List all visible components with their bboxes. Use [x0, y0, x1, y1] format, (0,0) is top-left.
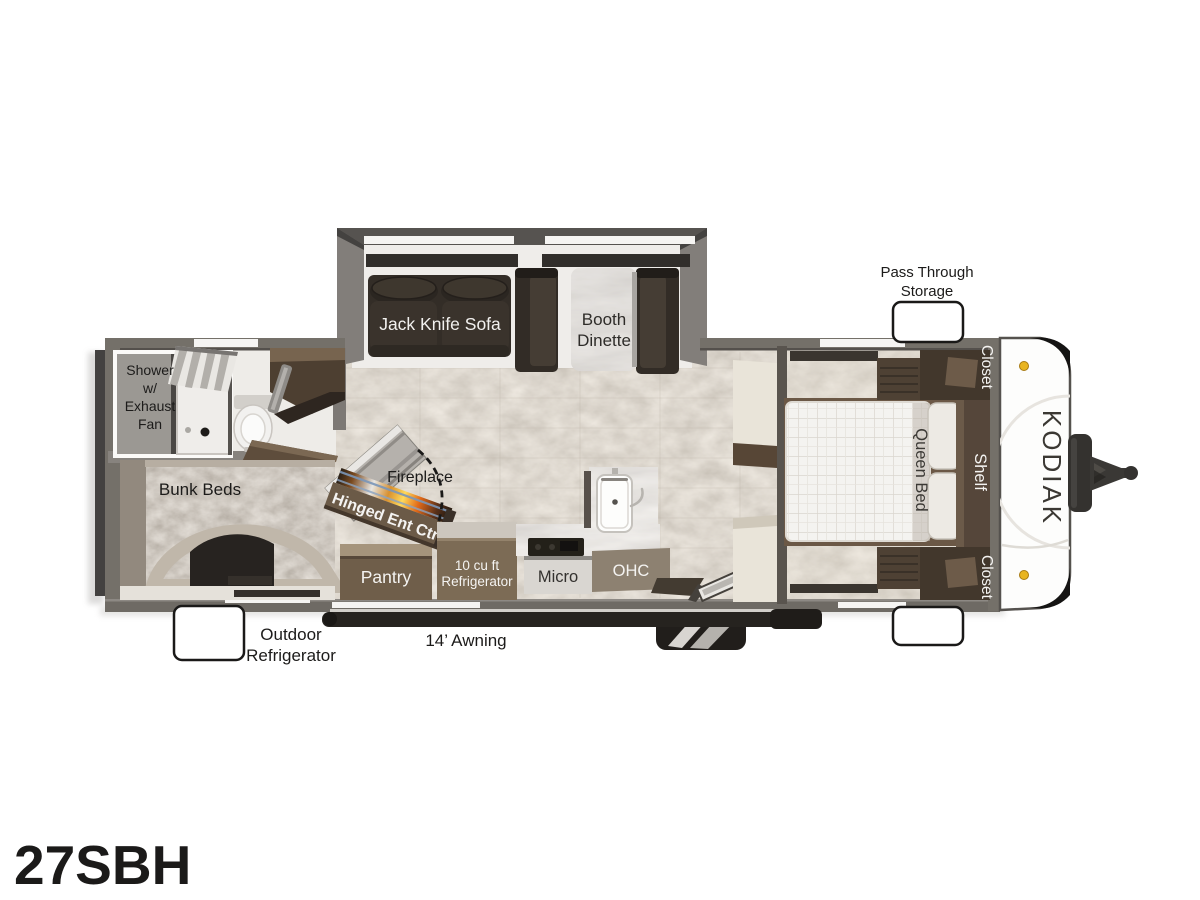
- svg-text:Refrigerator: Refrigerator: [441, 574, 513, 589]
- svg-text:OHC: OHC: [613, 562, 650, 580]
- svg-text:Exhaust: Exhaust: [125, 398, 176, 414]
- svg-text:KODIAK: KODIAK: [1037, 410, 1067, 526]
- svg-text:Storage: Storage: [901, 283, 954, 300]
- svg-text:w/: w/: [142, 380, 157, 396]
- svg-text:Refrigerator: Refrigerator: [246, 646, 336, 665]
- svg-text:Pass Through: Pass Through: [880, 264, 973, 281]
- svg-text:Shelf: Shelf: [971, 453, 989, 491]
- svg-text:10 cu ft: 10 cu ft: [455, 558, 500, 573]
- svg-text:Booth: Booth: [582, 310, 626, 329]
- svg-text:Micro: Micro: [538, 568, 578, 586]
- svg-text:Shower: Shower: [126, 362, 174, 378]
- svg-text:Bunk Beds: Bunk Beds: [159, 480, 241, 499]
- svg-text:Fan: Fan: [138, 416, 162, 432]
- svg-text:Outdoor: Outdoor: [260, 625, 322, 644]
- svg-text:14’ Awning: 14’ Awning: [425, 631, 506, 650]
- svg-text:Fireplace: Fireplace: [387, 469, 453, 486]
- svg-text:Closet: Closet: [978, 345, 995, 390]
- svg-text:27SBH: 27SBH: [14, 834, 191, 896]
- svg-text:Dinette: Dinette: [577, 331, 631, 350]
- svg-text:Closet: Closet: [978, 555, 995, 600]
- svg-text:Queen Bed: Queen Bed: [912, 428, 930, 511]
- svg-text:Jack Knife Sofa: Jack Knife Sofa: [379, 314, 501, 334]
- svg-text:Pantry: Pantry: [361, 567, 412, 587]
